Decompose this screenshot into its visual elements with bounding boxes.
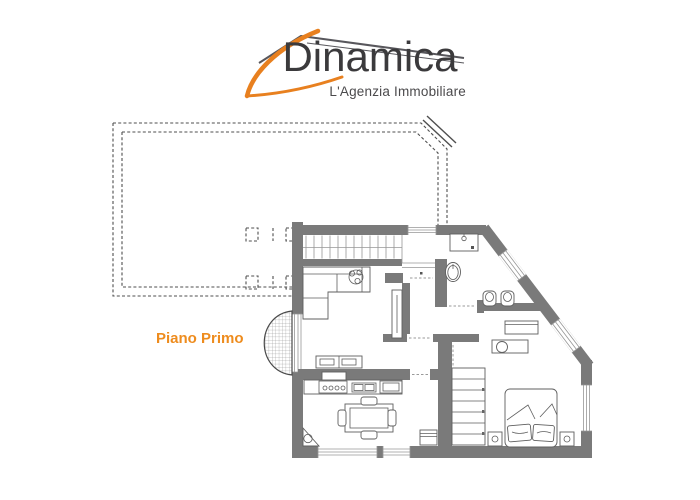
desk [492,340,528,353]
kitchen [303,372,437,446]
wardrobe [452,368,485,445]
corner-sink [303,428,319,446]
corridor-furniture [492,321,538,353]
range-hood [322,372,346,380]
toilet [483,291,496,306]
floorplan-page: { "page": { "bg": "#ffffff" }, "logo": {… [0,0,700,500]
logo-tagline: L'Agenzia Immobiliare [270,84,466,99]
kitchen-north-wall [298,369,410,380]
bath-west-wall [435,259,447,307]
bathroom-sink [450,234,478,251]
east-window [581,385,592,431]
north-wall-left [292,225,408,235]
pillow-right [532,424,554,441]
dresser [505,321,538,334]
bidet [501,291,514,306]
nightstand-right [560,432,574,446]
stair-wall [303,259,402,266]
floor-caption: Piano Primo [156,330,244,347]
desk-chair [497,342,508,353]
hall-wall [438,334,452,448]
landing-stub-wall [385,273,403,283]
pillow-left [507,424,531,442]
tv-cabinet [392,290,402,338]
bedroom [452,368,574,447]
diagonal-window-lower [551,319,581,353]
dining-table [345,404,393,432]
south-window-right [383,446,410,458]
stair-mark [420,272,423,275]
bow-window [264,311,292,375]
closet-cabinet [420,430,437,445]
south-window-left [318,446,377,458]
nightstand-left [488,432,502,446]
logo-title: Dinamica [270,36,470,78]
terrace-outline [113,116,456,296]
north-wall-right [436,225,486,235]
double-bed [505,389,557,447]
living-east-wall [402,283,410,334]
diagonal-window-upper [499,250,527,282]
north-window [408,225,436,235]
sideboard [316,356,362,368]
washbasin-round [446,263,461,282]
terrace-pier-symbols [246,228,293,289]
bow-window-opening [292,314,303,372]
bathroom [446,234,515,306]
